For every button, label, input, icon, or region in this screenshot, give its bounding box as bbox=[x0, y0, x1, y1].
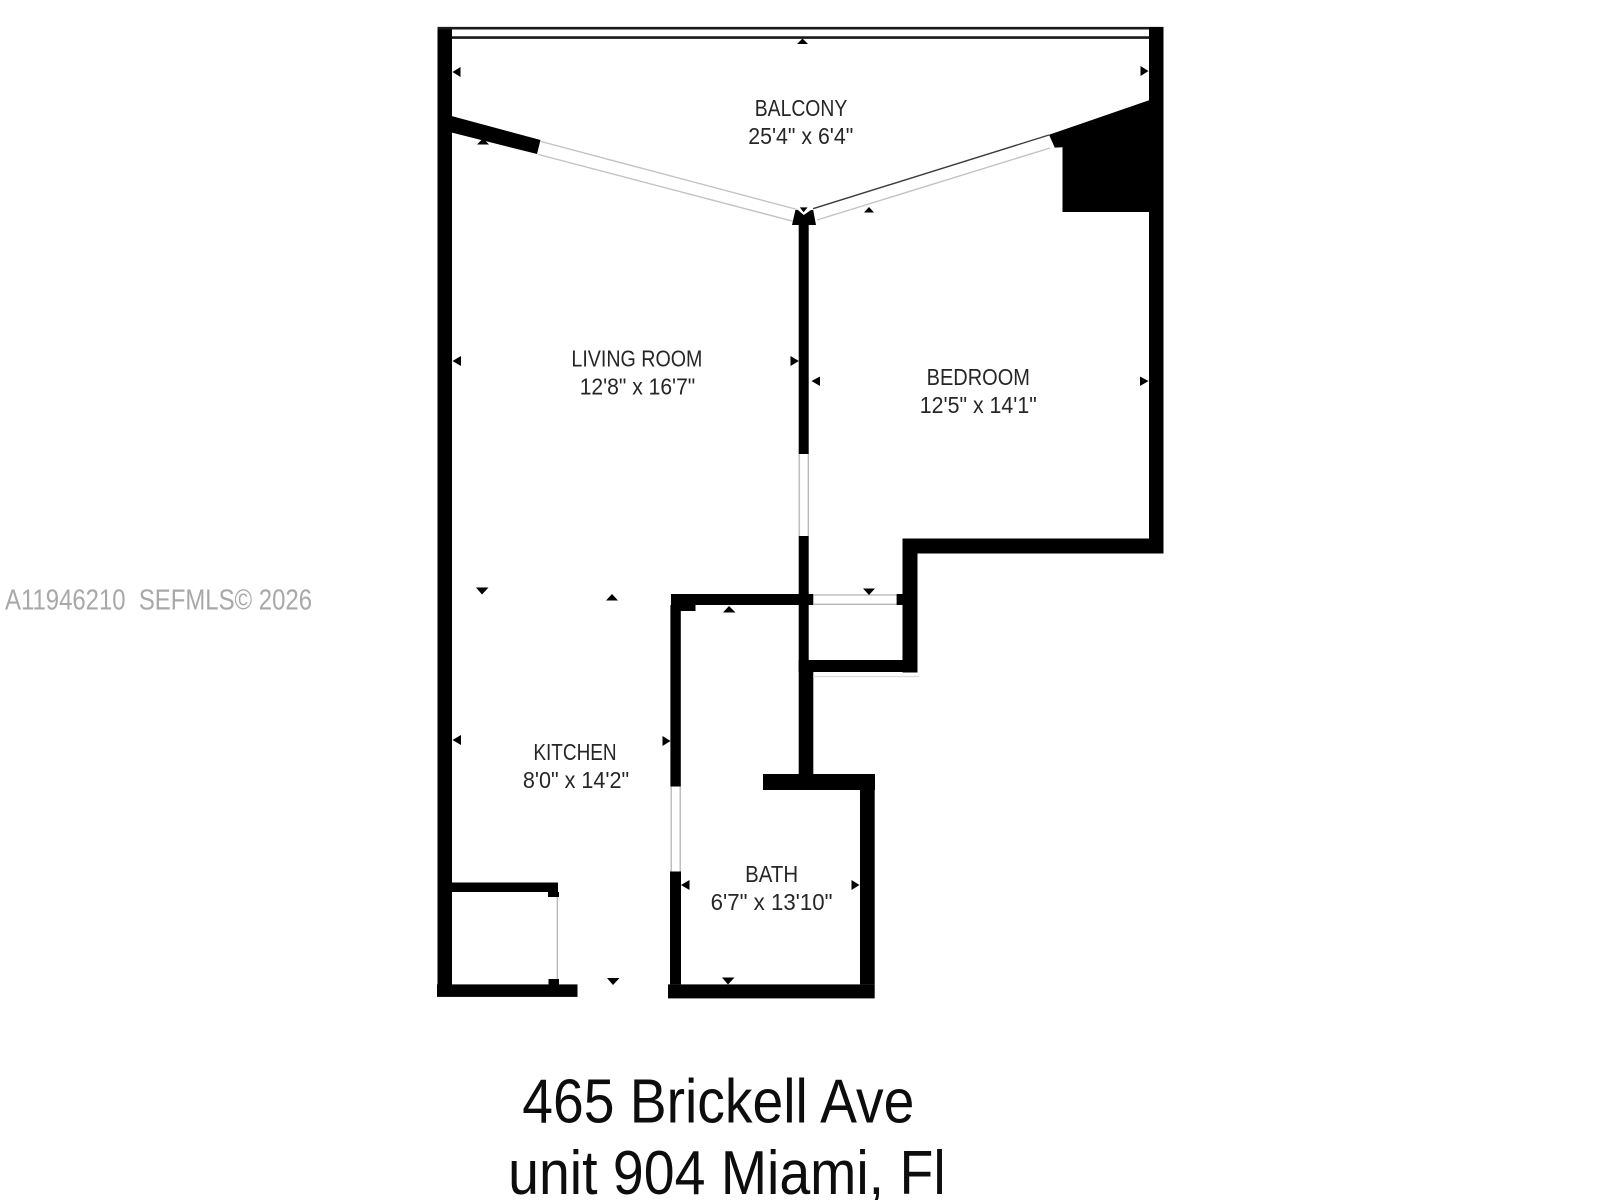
svg-text:LIVING ROOM: LIVING ROOM bbox=[571, 346, 702, 372]
svg-text:465 Brickell Ave: 465 Brickell Ave bbox=[522, 1068, 914, 1137]
svg-text:25'4" x 6'4": 25'4" x 6'4" bbox=[748, 123, 853, 149]
svg-text:BATH: BATH bbox=[745, 861, 798, 887]
svg-text:BALCONY: BALCONY bbox=[755, 95, 848, 121]
svg-text:6'7" x 13'10": 6'7" x 13'10" bbox=[711, 889, 833, 915]
svg-text:12'5" x 14'1": 12'5" x 14'1" bbox=[920, 392, 1037, 418]
svg-text:unit 904 Miami, Fl: unit 904 Miami, Fl bbox=[508, 1139, 946, 1200]
svg-text:BEDROOM: BEDROOM bbox=[927, 364, 1030, 390]
svg-text:KITCHEN: KITCHEN bbox=[533, 739, 616, 765]
svg-text:12'8" x 16'7": 12'8" x 16'7" bbox=[580, 374, 696, 400]
svg-text:A11946210 SEFMLS© 2026: A11946210 SEFMLS© 2026 bbox=[5, 585, 312, 617]
svg-text:8'0" x 14'2": 8'0" x 14'2" bbox=[523, 767, 629, 793]
